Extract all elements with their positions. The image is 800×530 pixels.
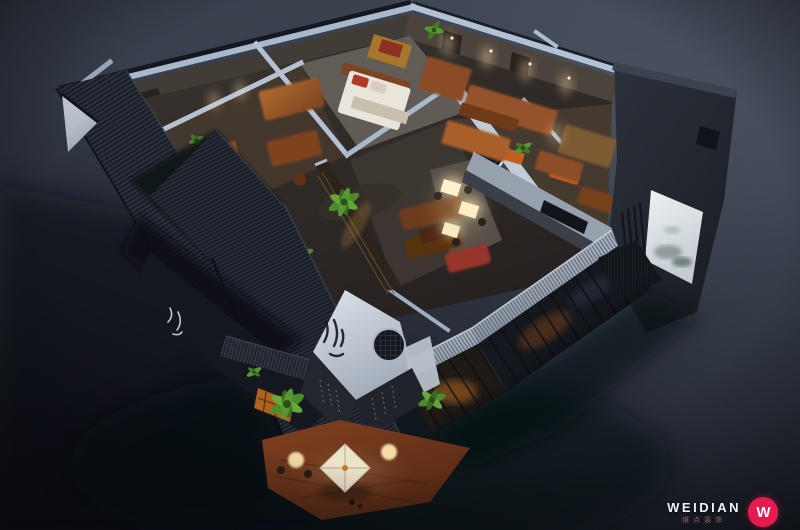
badge-letter: W xyxy=(756,504,769,521)
scene-3d-render xyxy=(0,0,800,530)
vignette xyxy=(0,0,800,530)
brand-badge-w-icon: W xyxy=(748,497,778,527)
render-canvas: WEIDIAN 维点装饰 W xyxy=(0,0,800,530)
brand-subtitle: 维点装饰 xyxy=(682,517,726,524)
brand-name: WEIDIAN xyxy=(667,501,741,514)
watermark-logo: WEIDIAN 维点装饰 W xyxy=(667,497,778,527)
brand-text-block: WEIDIAN 维点装饰 xyxy=(667,501,741,524)
